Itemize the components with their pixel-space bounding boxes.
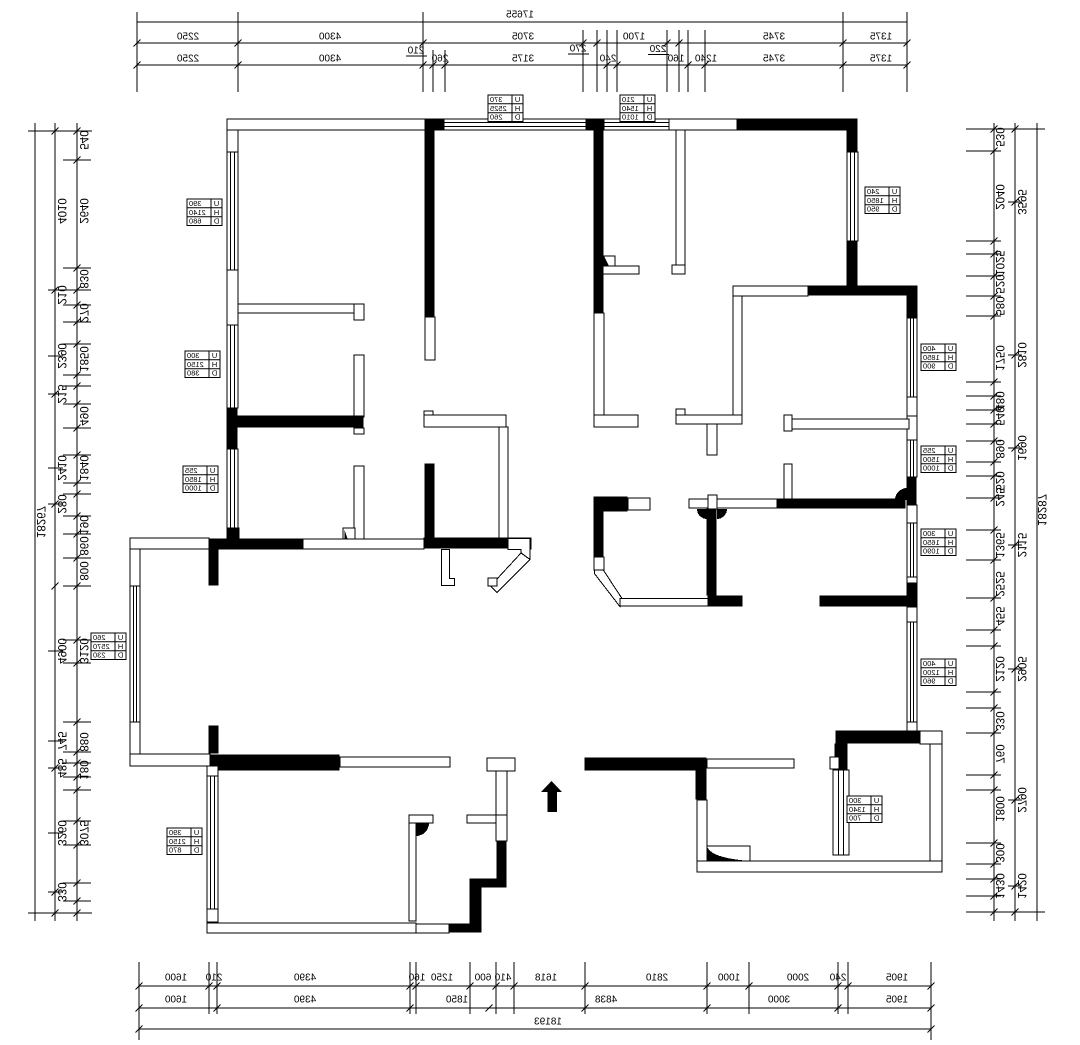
svg-text:3120: 3120 xyxy=(77,638,89,664)
svg-text:H: H xyxy=(118,642,123,651)
svg-text:950: 950 xyxy=(867,205,880,214)
svg-text:4300: 4300 xyxy=(318,32,341,43)
svg-text:680: 680 xyxy=(189,217,202,226)
svg-text:D: D xyxy=(873,814,879,823)
svg-text:1850: 1850 xyxy=(77,346,89,372)
svg-text:2115: 2115 xyxy=(1015,533,1027,558)
svg-text:1700: 1700 xyxy=(622,32,645,43)
svg-text:D: D xyxy=(947,547,953,556)
svg-text:2810: 2810 xyxy=(645,973,668,984)
svg-text:400: 400 xyxy=(923,659,936,668)
svg-text:U: U xyxy=(647,95,652,104)
svg-text:210: 210 xyxy=(55,285,67,304)
svg-text:300: 300 xyxy=(849,796,862,805)
svg-text:U: U xyxy=(948,344,953,353)
svg-text:U: U xyxy=(892,187,897,196)
svg-text:2250: 2250 xyxy=(176,32,199,43)
svg-text:580: 580 xyxy=(993,296,1005,315)
svg-text:390: 390 xyxy=(169,828,182,837)
svg-text:D: D xyxy=(947,677,953,686)
svg-text:18267: 18267 xyxy=(34,506,46,538)
svg-text:960: 960 xyxy=(923,677,936,686)
svg-text:270: 270 xyxy=(77,303,89,322)
svg-text:255: 255 xyxy=(185,466,198,475)
svg-text:760: 760 xyxy=(993,744,1005,763)
svg-text:3595: 3595 xyxy=(1015,189,1027,215)
svg-text:U: U xyxy=(874,796,879,805)
svg-text:D: D xyxy=(211,369,217,378)
svg-text:H: H xyxy=(948,668,953,677)
svg-text:240: 240 xyxy=(867,187,880,196)
svg-text:3705: 3705 xyxy=(511,32,534,43)
svg-text:900: 900 xyxy=(923,362,936,371)
svg-text:1618: 1618 xyxy=(534,973,557,984)
svg-text:260: 260 xyxy=(431,54,448,65)
svg-text:1850: 1850 xyxy=(867,196,884,205)
svg-text:H: H xyxy=(194,837,199,846)
svg-text:4390: 4390 xyxy=(293,995,316,1006)
svg-text:D: D xyxy=(891,205,897,214)
svg-text:490: 490 xyxy=(77,406,89,425)
svg-text:1420: 1420 xyxy=(1015,873,1027,899)
svg-text:485: 485 xyxy=(55,758,67,777)
svg-text:1010: 1010 xyxy=(622,113,639,122)
svg-text:1540: 1540 xyxy=(622,104,639,113)
svg-text:H: H xyxy=(948,353,953,362)
svg-text:3075: 3075 xyxy=(77,820,89,846)
svg-text:H: H xyxy=(647,104,652,113)
svg-text:1000: 1000 xyxy=(923,464,940,473)
svg-text:1800: 1800 xyxy=(993,796,1005,822)
svg-text:880: 880 xyxy=(77,732,89,751)
svg-text:1850: 1850 xyxy=(185,475,202,484)
svg-text:D: D xyxy=(193,846,199,855)
svg-text:210: 210 xyxy=(622,95,635,104)
svg-text:230: 230 xyxy=(93,651,106,660)
svg-text:2390: 2390 xyxy=(55,343,67,369)
svg-text:2150: 2150 xyxy=(187,360,204,369)
svg-text:U: U xyxy=(118,633,123,642)
svg-text:380: 380 xyxy=(187,369,200,378)
svg-text:17655: 17655 xyxy=(506,10,534,21)
svg-text:H: H xyxy=(948,538,953,547)
svg-text:890: 890 xyxy=(993,439,1005,458)
svg-text:260: 260 xyxy=(490,113,503,122)
svg-text:370: 370 xyxy=(490,95,503,104)
svg-text:455: 455 xyxy=(993,606,1005,625)
svg-text:330: 330 xyxy=(993,711,1005,730)
svg-text:1000: 1000 xyxy=(717,973,740,984)
svg-text:D: D xyxy=(514,113,520,122)
svg-text:2570: 2570 xyxy=(93,642,110,651)
svg-text:18287: 18287 xyxy=(1035,494,1047,526)
svg-text:2525: 2525 xyxy=(993,571,1005,597)
svg-text:1365: 1365 xyxy=(993,532,1005,558)
svg-text:U: U xyxy=(210,466,215,475)
svg-text:2640: 2640 xyxy=(77,198,89,224)
svg-text:1250: 1250 xyxy=(430,973,453,984)
svg-text:1430: 1430 xyxy=(993,873,1005,899)
svg-text:260: 260 xyxy=(93,633,106,642)
svg-text:830: 830 xyxy=(77,269,89,288)
svg-text:1500: 1500 xyxy=(923,455,940,464)
svg-text:160: 160 xyxy=(667,54,684,65)
svg-text:U: U xyxy=(948,529,953,538)
svg-text:U: U xyxy=(515,95,520,104)
svg-text:18193: 18193 xyxy=(534,1017,562,1028)
svg-text:H: H xyxy=(892,196,897,205)
svg-text:D: D xyxy=(209,484,215,493)
svg-text:180: 180 xyxy=(77,760,89,779)
svg-text:D: D xyxy=(213,217,219,226)
svg-text:300: 300 xyxy=(187,351,200,360)
svg-text:2120: 2120 xyxy=(993,656,1005,682)
svg-text:U: U xyxy=(214,199,219,208)
svg-text:240: 240 xyxy=(599,54,616,65)
svg-text:1690: 1690 xyxy=(1015,435,1027,461)
svg-text:1340: 1340 xyxy=(849,805,866,814)
svg-text:210: 210 xyxy=(407,46,424,57)
svg-text:2140: 2140 xyxy=(189,208,206,217)
svg-text:600: 600 xyxy=(474,973,491,984)
svg-text:1090: 1090 xyxy=(923,547,940,556)
svg-text:2790: 2790 xyxy=(1015,787,1027,813)
svg-text:2525: 2525 xyxy=(490,104,507,113)
svg-text:860: 860 xyxy=(77,536,89,555)
svg-text:D: D xyxy=(646,113,652,122)
svg-text:390: 390 xyxy=(189,199,202,208)
svg-text:870: 870 xyxy=(169,846,182,855)
svg-text:210: 210 xyxy=(205,973,222,984)
svg-text:2410: 2410 xyxy=(55,455,67,481)
svg-text:3000: 3000 xyxy=(767,995,790,1006)
svg-text:2905: 2905 xyxy=(1015,656,1027,682)
svg-text:2000: 2000 xyxy=(786,973,809,984)
svg-text:1650: 1650 xyxy=(923,538,940,547)
svg-text:D: D xyxy=(117,651,123,660)
svg-text:2250: 2250 xyxy=(176,54,199,65)
svg-text:410: 410 xyxy=(494,973,511,984)
svg-text:1025: 1025 xyxy=(993,250,1005,276)
svg-text:H: H xyxy=(212,360,217,369)
svg-text:220: 220 xyxy=(649,44,666,55)
svg-text:1850: 1850 xyxy=(923,353,940,362)
svg-text:H: H xyxy=(214,208,219,217)
svg-text:1240: 1240 xyxy=(694,54,717,65)
svg-text:1750: 1750 xyxy=(993,345,1005,371)
svg-text:3745: 3745 xyxy=(762,54,785,65)
svg-text:2810: 2810 xyxy=(1015,342,1027,368)
svg-text:H: H xyxy=(515,104,520,113)
svg-text:H: H xyxy=(210,475,215,484)
svg-text:215: 215 xyxy=(55,384,67,403)
svg-text:H: H xyxy=(948,455,953,464)
svg-text:300: 300 xyxy=(993,843,1005,862)
svg-text:190: 190 xyxy=(77,515,89,534)
svg-text:D: D xyxy=(947,362,953,371)
svg-text:1850: 1850 xyxy=(445,995,468,1006)
svg-text:1600: 1600 xyxy=(164,995,187,1006)
svg-text:530: 530 xyxy=(993,127,1005,146)
svg-text:1905: 1905 xyxy=(885,973,908,984)
svg-text:4300: 4300 xyxy=(318,54,341,65)
svg-text:H: H xyxy=(874,805,879,814)
svg-text:280: 280 xyxy=(55,494,67,513)
svg-text:800: 800 xyxy=(77,561,89,580)
svg-text:245: 245 xyxy=(993,487,1005,506)
svg-text:3260: 3260 xyxy=(55,820,67,846)
svg-text:1375: 1375 xyxy=(869,32,892,43)
svg-text:400: 400 xyxy=(923,344,936,353)
svg-text:3175: 3175 xyxy=(511,54,534,65)
svg-text:1840: 1840 xyxy=(77,455,89,481)
svg-text:255: 255 xyxy=(923,446,936,455)
svg-text:1905: 1905 xyxy=(885,995,908,1006)
svg-text:2040: 2040 xyxy=(993,184,1005,210)
svg-text:1375: 1375 xyxy=(869,54,892,65)
svg-text:1200: 1200 xyxy=(923,668,940,677)
svg-text:4900: 4900 xyxy=(55,638,67,664)
svg-text:4838: 4838 xyxy=(594,995,617,1006)
svg-text:3745: 3745 xyxy=(762,32,785,43)
svg-text:U: U xyxy=(948,446,953,455)
svg-text:U: U xyxy=(194,828,199,837)
svg-text:300: 300 xyxy=(923,529,936,538)
svg-text:U: U xyxy=(212,351,217,360)
svg-text:1000: 1000 xyxy=(185,484,202,493)
svg-text:520: 520 xyxy=(993,274,1005,293)
svg-text:4390: 4390 xyxy=(293,973,316,984)
svg-text:240: 240 xyxy=(829,973,846,984)
svg-text:540: 540 xyxy=(993,406,1005,425)
svg-text:270: 270 xyxy=(569,44,586,55)
svg-text:U: U xyxy=(948,659,953,668)
svg-text:1600: 1600 xyxy=(164,973,187,984)
svg-text:745: 745 xyxy=(55,731,67,750)
svg-text:330: 330 xyxy=(55,882,67,901)
svg-text:2150: 2150 xyxy=(169,837,186,846)
svg-text:700: 700 xyxy=(849,814,862,823)
svg-text:D: D xyxy=(947,464,953,473)
svg-text:160: 160 xyxy=(408,973,425,984)
svg-text:4010: 4010 xyxy=(55,198,67,224)
svg-text:540: 540 xyxy=(77,130,89,149)
